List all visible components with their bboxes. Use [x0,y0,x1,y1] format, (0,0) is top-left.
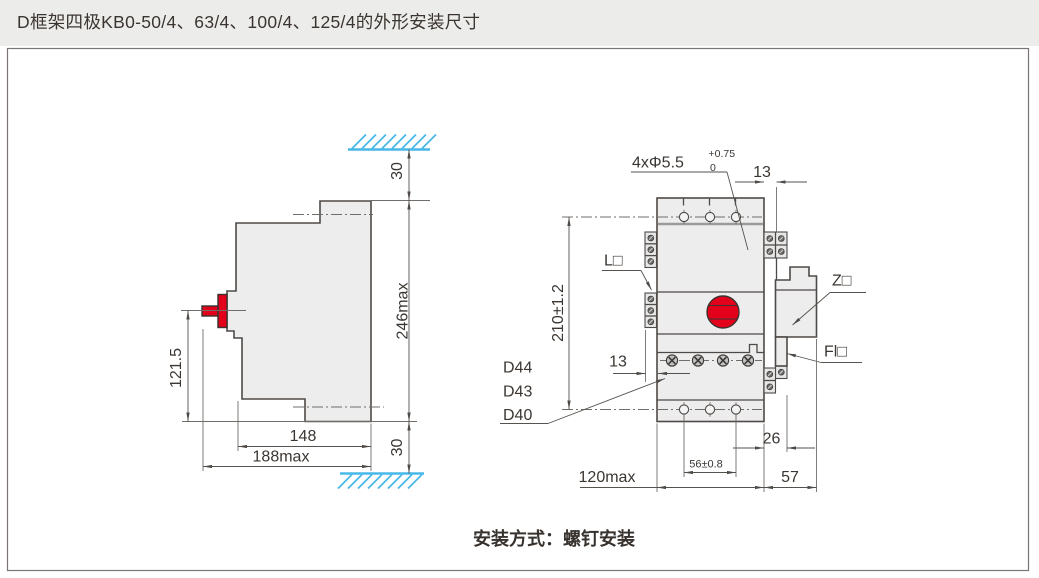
front-view: 4xΦ5.5 +0.75 0 13 210±1.2 13 D44 D43 [500,148,866,492]
dim-121-5: 121.5 [168,348,185,388]
model-labels: D44 D43 D40 [500,360,665,425]
technical-drawing: 121.5 148 188max 246max 30 30 [0,0,1039,578]
dim-13-top: 13 [753,164,771,181]
content-frame [8,49,1029,571]
svg-text:Z□: Z□ [832,273,852,290]
page: D框架四极KB0-50/4、63/4、100/4、125/4的外形安装尺寸 [0,0,1039,578]
svg-text:Fl□: Fl□ [824,344,847,361]
svg-text:L□: L□ [604,253,623,270]
dim-56: 56±0.8 [689,459,723,471]
dim-13-mid: 13 [609,354,627,371]
terminal-block-upper-left [645,232,657,268]
terminal-block-lower-left [645,293,657,328]
label-d44: D44 [503,360,532,377]
side-view-body [227,201,371,422]
dim-30-bottom: 30 [389,439,406,457]
dim-210: 210±1.2 [550,284,567,342]
dim-120max: 120max [579,469,636,486]
accessory-label-fl: Fl□ [787,344,862,363]
hole-callout-tol-upper: +0.75 [709,148,736,160]
dim-57: 57 [781,469,799,486]
label-d40: D40 [503,407,532,424]
terminal-block-upper-right [764,232,787,258]
hole-callout-text: 4xΦ5.5 [632,155,684,172]
dim-26: 26 [763,431,781,448]
dim-30-top: 30 [389,162,406,180]
dim-188max: 188max [253,449,310,466]
mounting-method-caption: 安装方式：螺钉安装 [473,528,635,549]
accessory-label-l: L□ [602,253,652,291]
side-view: 121.5 148 188max 246max 30 30 [168,135,436,489]
label-d43: D43 [503,384,532,401]
z-accessory-shape [776,267,817,337]
bottom-wall-hatch [338,474,424,489]
dim-148: 148 [290,428,317,445]
terminal-block-lower-right [764,366,787,393]
red-button [707,296,739,328]
fl-strip [776,337,788,366]
dim-246max: 246max [395,283,412,340]
toggle-handle [202,295,227,328]
top-wall-hatch [348,135,436,150]
